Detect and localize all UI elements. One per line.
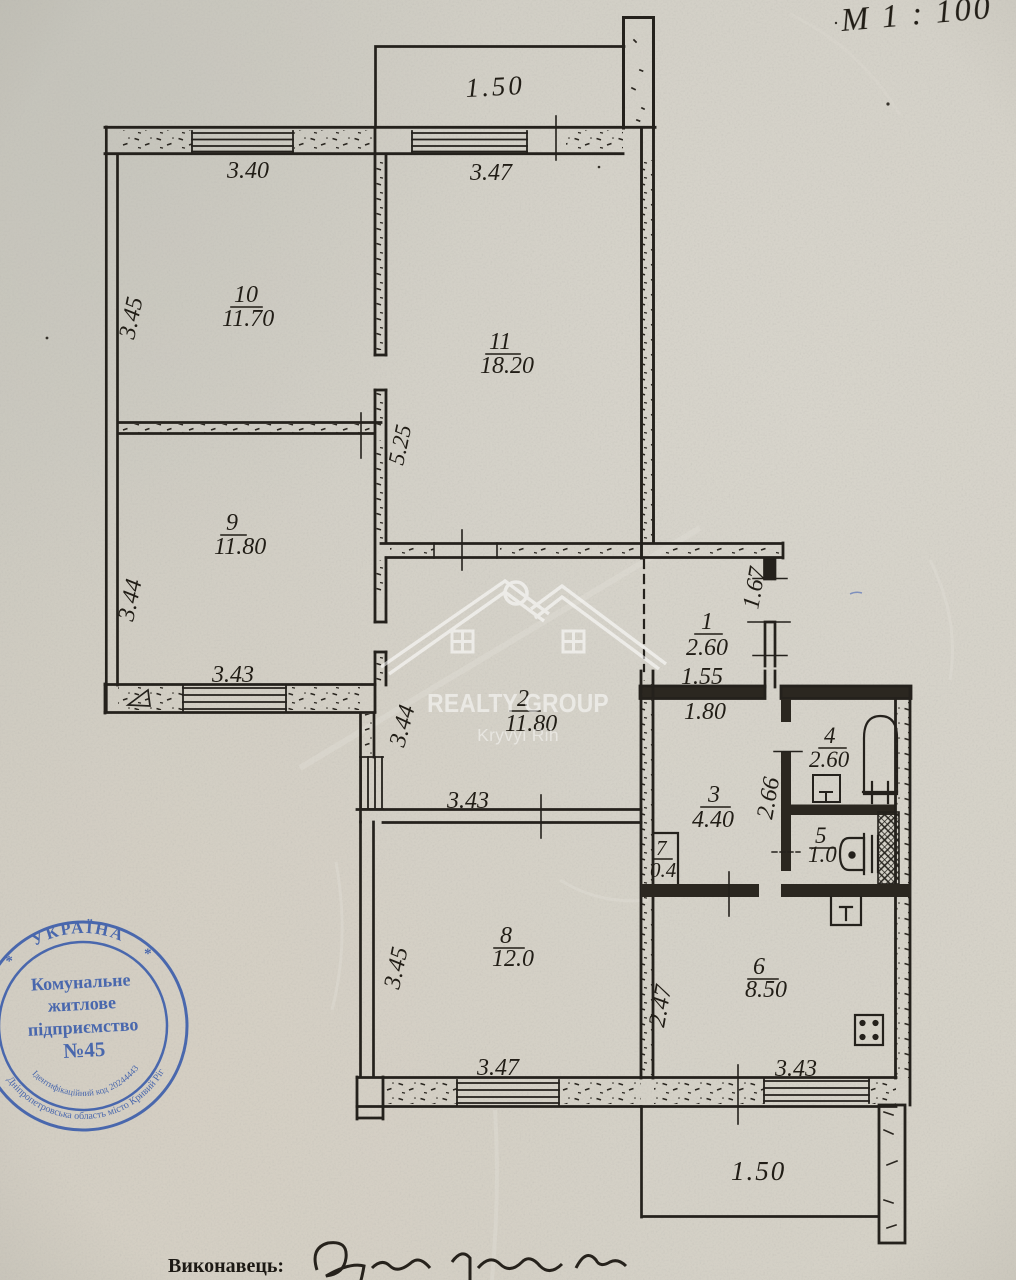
svg-text:10: 10 <box>234 282 258 308</box>
svg-text:11: 11 <box>489 329 511 355</box>
svg-text:2.60: 2.60 <box>686 635 728 661</box>
svg-text:12.0: 12.0 <box>492 946 534 972</box>
svg-text:Kryvyi Rih: Kryvyi Rih <box>477 725 559 745</box>
svg-text:7: 7 <box>656 836 668 860</box>
svg-text:3.40: 3.40 <box>226 158 269 184</box>
svg-text:1.0: 1.0 <box>808 842 837 867</box>
svg-text:11.70: 11.70 <box>222 306 274 332</box>
svg-text:REALTY GROUP: REALTY GROUP <box>427 690 609 719</box>
svg-text:2.60: 2.60 <box>809 747 850 772</box>
svg-text:3: 3 <box>707 782 720 808</box>
svg-text:11.80: 11.80 <box>214 534 266 560</box>
svg-text:*: * <box>5 954 13 970</box>
svg-text:3.47: 3.47 <box>469 160 513 186</box>
svg-text:3.43: 3.43 <box>211 662 254 688</box>
svg-text:4: 4 <box>824 723 836 748</box>
svg-text:1.50: 1.50 <box>465 70 526 103</box>
svg-text:8.50: 8.50 <box>745 977 787 1003</box>
svg-text:*: * <box>144 946 152 962</box>
svg-text:4.40: 4.40 <box>692 807 734 833</box>
svg-text:№45: №45 <box>63 1037 106 1063</box>
svg-text:3.43: 3.43 <box>446 788 489 814</box>
svg-text:1.80: 1.80 <box>684 699 726 725</box>
svg-text:житлове: житлове <box>47 992 116 1016</box>
svg-text:9: 9 <box>226 510 238 536</box>
svg-text:Виконавець:: Виконавець: <box>168 1255 284 1277</box>
svg-text:1: 1 <box>701 609 713 635</box>
svg-text:1.50: 1.50 <box>731 1156 786 1186</box>
svg-text:18.20: 18.20 <box>480 353 534 379</box>
svg-text:0.4: 0.4 <box>650 858 677 882</box>
